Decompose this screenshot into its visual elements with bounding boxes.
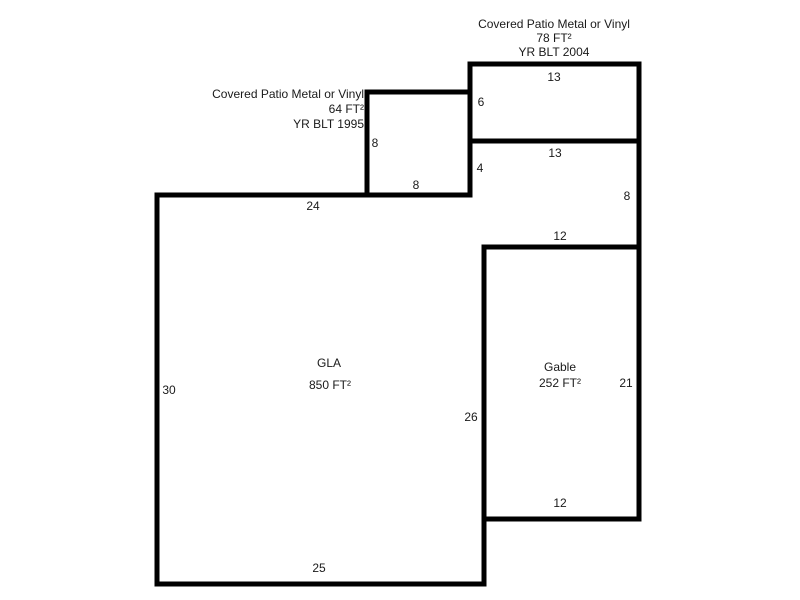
- dim-connector-left: 4: [477, 161, 484, 175]
- gable-name-label: Gable: [544, 360, 576, 374]
- gable-area-label: 252 FT²: [539, 376, 581, 390]
- dim-gable-bottom: 12: [553, 496, 566, 510]
- dim-connector-right: 8: [624, 189, 631, 203]
- dim-gla-right: 26: [464, 410, 477, 424]
- patio-64-caption-line1: Covered Patio Metal or Vinyl: [212, 87, 364, 102]
- dim-gla-left: 30: [162, 383, 175, 397]
- patio-64-caption-line3: YR BLT 1995: [212, 117, 364, 132]
- dim-patio78-top: 13: [547, 70, 560, 84]
- patio-64-caption: Covered Patio Metal or Vinyl 64 FT² YR B…: [212, 87, 364, 132]
- sketch-walls: [0, 0, 800, 600]
- patio-78-caption-line1: Covered Patio Metal or Vinyl: [478, 17, 630, 31]
- dim-connector-top: 13: [548, 146, 561, 160]
- dim-patio78-left: 6: [478, 95, 485, 109]
- dim-gable-top: 12: [553, 229, 566, 243]
- patio-78-caption-line3: YR BLT 2004: [478, 45, 630, 59]
- dim-gable-right: 21: [619, 376, 632, 390]
- floor-plan-sketch: Covered Patio Metal or Vinyl 78 FT² YR B…: [0, 0, 800, 600]
- gla-name-label: GLA: [317, 356, 341, 370]
- dim-gla-top: 24: [306, 199, 319, 213]
- patio-64-caption-line2: 64 FT²: [212, 102, 364, 117]
- patio-78-caption: Covered Patio Metal or Vinyl 78 FT² YR B…: [478, 17, 630, 59]
- dim-patio64-left: 8: [372, 136, 379, 150]
- dim-gla-bottom: 25: [312, 561, 325, 575]
- patio-78-caption-line2: 78 FT²: [478, 31, 630, 45]
- gla-area-label: 850 FT²: [309, 378, 351, 392]
- dim-patio64-bottom: 8: [413, 178, 420, 192]
